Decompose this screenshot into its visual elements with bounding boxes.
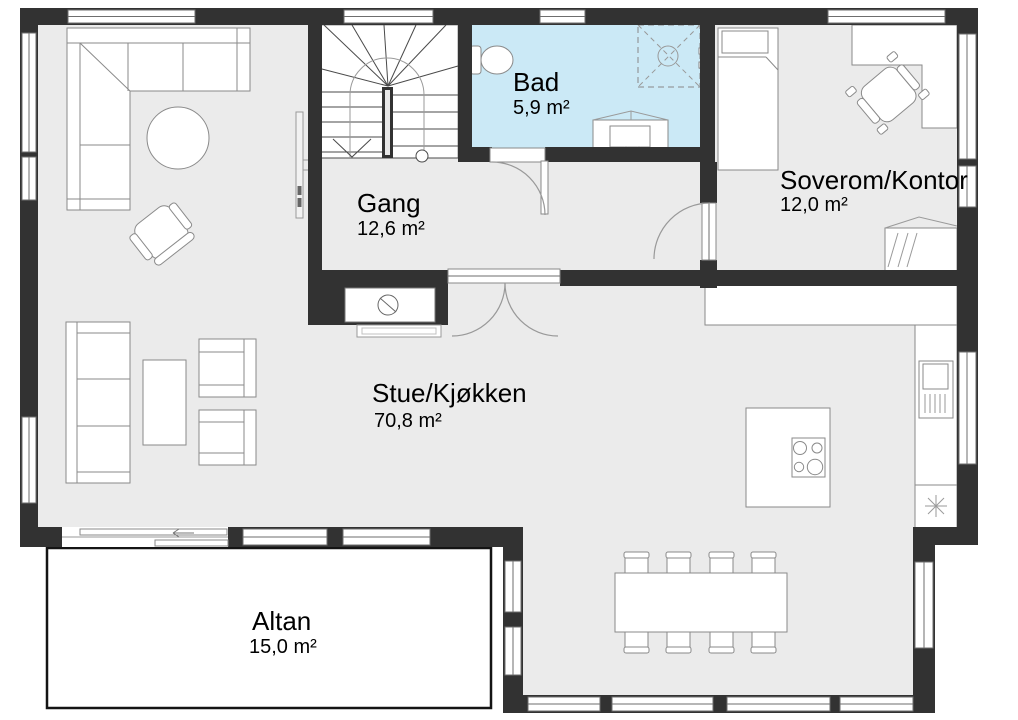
dining-chair [751, 632, 776, 653]
window [959, 34, 976, 159]
round-side-table [147, 107, 209, 169]
armchair [199, 339, 256, 397]
wall-stair-left [308, 25, 322, 273]
dining-chair [666, 632, 691, 653]
wall-step-right [913, 527, 978, 545]
dining-chair [709, 632, 734, 653]
toilet [470, 46, 513, 74]
window [505, 561, 521, 612]
bed [718, 28, 778, 170]
window [959, 352, 976, 464]
window [828, 10, 945, 23]
room-name: Altan [252, 606, 311, 636]
coffee-table [143, 360, 186, 445]
label-altan: Altan 15,0 m² [249, 606, 317, 658]
window [505, 627, 521, 675]
staircase [318, 25, 458, 162]
wall-bedroom-south [560, 270, 957, 286]
window [612, 697, 713, 711]
hearth-plate [357, 325, 441, 337]
window [22, 417, 36, 503]
window [840, 697, 913, 711]
room-area: 70,8 m² [374, 410, 442, 432]
room-name: Stue/Kjøkken [372, 378, 527, 408]
room-name: Bad [513, 67, 559, 97]
dining-chair [709, 552, 734, 573]
sliding-panel [80, 529, 227, 535]
window [22, 33, 36, 152]
room-area: 5,9 m² [513, 97, 570, 119]
vanity-sink [593, 111, 668, 152]
window [344, 10, 433, 23]
window [727, 697, 830, 711]
freezer-snowflake-icon [925, 495, 947, 517]
room-area: 12,6 m² [357, 218, 425, 240]
window [243, 529, 327, 545]
label-gang: Gang 12,6 m² [357, 188, 425, 240]
wall-hall-bedroom [700, 162, 717, 203]
floor-plan-page: Stue/Kjøkken 70,8 m² Gang 12,6 m² Bad 5,… [0, 0, 1018, 720]
room-area: 15,0 m² [249, 636, 317, 658]
window [915, 562, 933, 648]
sliding-door-balcony [62, 527, 228, 547]
dining-chair [624, 552, 649, 573]
window [528, 697, 600, 711]
window [68, 10, 195, 23]
dining-chair [751, 552, 776, 573]
window [22, 157, 36, 200]
kitchen-counter-top [705, 284, 957, 325]
dining-chair [624, 632, 649, 653]
sliding-panel [155, 540, 228, 546]
armchair [199, 410, 256, 465]
wall-bath-bottom [458, 147, 492, 162]
wall-bath-bottom [545, 147, 712, 162]
window [343, 529, 430, 545]
room-name: Gang [357, 188, 421, 218]
sofa [66, 322, 130, 483]
dining-table [615, 573, 787, 632]
floor-plan: Stue/Kjøkken 70,8 m² Gang 12,6 m² Bad 5,… [0, 0, 1018, 720]
stair-spine-rail [385, 90, 390, 155]
wall-bath-left [458, 25, 472, 162]
kitchen-island [746, 408, 830, 507]
room-name: Soverom/Kontor [780, 165, 968, 195]
wall-bath-bedroom [700, 25, 715, 162]
window [540, 10, 585, 23]
stair-newel-post [416, 150, 428, 162]
dining-chair [666, 552, 691, 573]
room-area: 12,0 m² [780, 194, 848, 216]
